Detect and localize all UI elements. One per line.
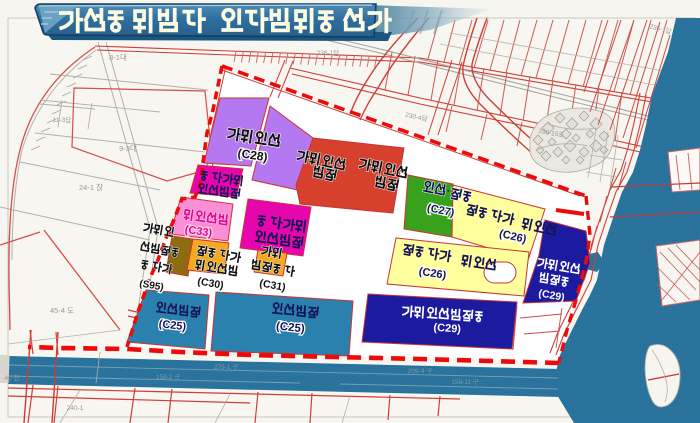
svg-text:40 전: 40 전	[4, 373, 19, 382]
svg-text:24-1 찭: 24-1 찭	[79, 182, 103, 192]
svg-text:8-1대: 8-1대	[109, 53, 127, 62]
svg-text:11-3답: 11-3답	[53, 116, 72, 124]
svg-text:240-1: 240-1	[67, 405, 84, 412]
svg-text:209-4 구: 209-4 구	[408, 367, 432, 375]
svg-text:236-1답: 236-1답	[317, 49, 340, 57]
svg-text:(C29): (C29)	[433, 322, 462, 336]
svg-text:9-3대: 9-3대	[119, 144, 137, 153]
svg-text:158-2 구: 158-2 구	[156, 373, 180, 381]
svg-text:45-4 도: 45-4 도	[50, 306, 74, 315]
svg-text:158-11 구: 158-11 구	[451, 378, 479, 386]
svg-text:279-1 구: 279-1 구	[214, 363, 238, 371]
